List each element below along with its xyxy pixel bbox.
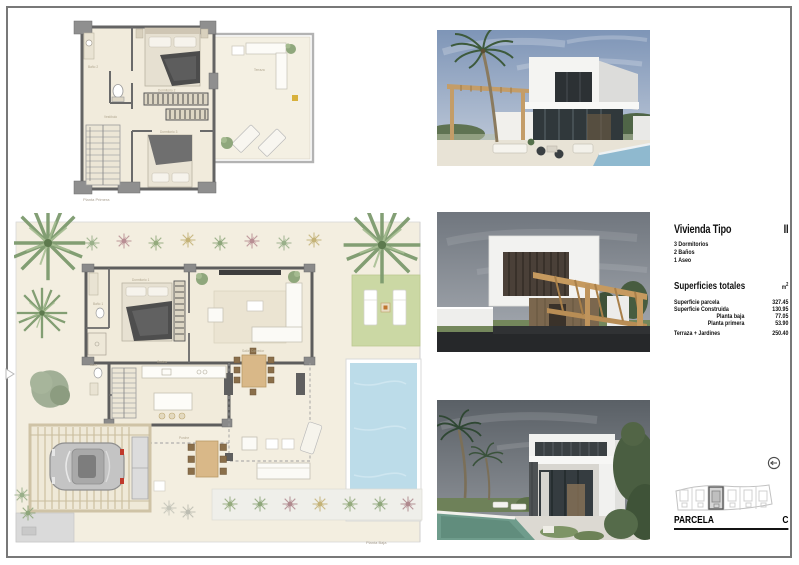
ground-floor-plan: Baño 1 Dormitorio 1 Salón Comedor Cocina… bbox=[14, 213, 432, 547]
plan-title-ground-floor: Planta Baja bbox=[366, 540, 387, 545]
parcel-label: PARCELA bbox=[674, 514, 714, 526]
presentation-sheet: Baño 2 Dormitorio 2 Vestíbulo Dormitorio… bbox=[0, 0, 799, 565]
info-panel: Vivienda Tipo II 3 Dormitorios 2 Baños 1… bbox=[674, 224, 799, 338]
type-title: Vivienda Tipo bbox=[674, 224, 731, 236]
parcel-location-map bbox=[674, 480, 774, 516]
room-label-bedroom3: Dormitorio 3 bbox=[160, 130, 178, 134]
room-label-aseo: Aseo bbox=[90, 363, 97, 367]
flowerbed bbox=[212, 489, 422, 520]
room-label-hall: Vestíbulo bbox=[104, 115, 117, 119]
unit-label: m2 bbox=[782, 282, 789, 291]
feature-bedrooms: 3 Dormitorios bbox=[674, 241, 788, 249]
fence-wall bbox=[437, 308, 493, 326]
surface-table: Superficie parcela 327.45 Superficie Con… bbox=[674, 299, 788, 338]
bed-dormitorio-3 bbox=[148, 135, 192, 187]
room-label-bath1: Baño 1 bbox=[93, 302, 103, 306]
bed-dormitorio-2 bbox=[136, 28, 208, 86]
room-label-kitchen: Cocina bbox=[157, 360, 167, 364]
lawn bbox=[352, 275, 420, 346]
room-label-bedroom2: Dormitorio 2 bbox=[158, 89, 176, 93]
first-floor-plan: Baño 2 Dormitorio 2 Vestíbulo Dormitorio… bbox=[60, 13, 322, 209]
parcel-title-block: PARCELA C bbox=[674, 514, 799, 530]
surface-row: Terraza + Jardines 250.40 bbox=[674, 330, 788, 338]
totals-title: Superficies totales bbox=[674, 281, 745, 292]
car bbox=[50, 443, 124, 490]
villa-building bbox=[529, 434, 625, 518]
type-number: II bbox=[784, 224, 789, 236]
palm-tree-left bbox=[17, 288, 67, 338]
driveway bbox=[16, 513, 74, 542]
base-wall bbox=[437, 332, 650, 352]
parcel-letter: C bbox=[782, 514, 788, 526]
villa-render-day-view bbox=[437, 30, 650, 166]
staircase-ground bbox=[112, 368, 136, 418]
north-arrow-icon bbox=[766, 455, 782, 471]
feature-toilets: 1 Aseo bbox=[674, 257, 788, 265]
room-label-porch: Porche bbox=[179, 436, 189, 440]
staircase bbox=[86, 125, 120, 185]
bed-dormitorio-1 bbox=[122, 281, 185, 341]
dining-table-outdoor bbox=[188, 441, 227, 477]
surface-row-indent: Planta primera 53.90 bbox=[674, 321, 788, 328]
surface-row: Superficie parcela 327.45 bbox=[674, 299, 788, 307]
garage bbox=[30, 425, 150, 511]
feature-list: 3 Dormitorios 2 Baños 1 Aseo bbox=[674, 241, 788, 266]
totals-header: Superficies totales m2 bbox=[674, 281, 788, 292]
plan-title-first-floor: Planta Primera bbox=[83, 197, 110, 202]
villa-render-pool-view bbox=[437, 400, 650, 540]
room-label-bath2: Baño 2 bbox=[88, 65, 98, 69]
room-label-living: Salón Comedor bbox=[242, 349, 265, 353]
terrace-accent bbox=[292, 95, 298, 101]
room-label-bedroom1: Dormitorio 1 bbox=[132, 278, 150, 282]
feature-bathrooms: 2 Baños bbox=[674, 249, 788, 257]
margin-marker-icon bbox=[5, 368, 15, 380]
room-label-terrace: Terraza bbox=[254, 68, 265, 72]
type-header: Vivienda Tipo II bbox=[674, 224, 788, 236]
porch-pillar bbox=[296, 373, 305, 395]
villa-render-pergola-view bbox=[437, 212, 650, 352]
